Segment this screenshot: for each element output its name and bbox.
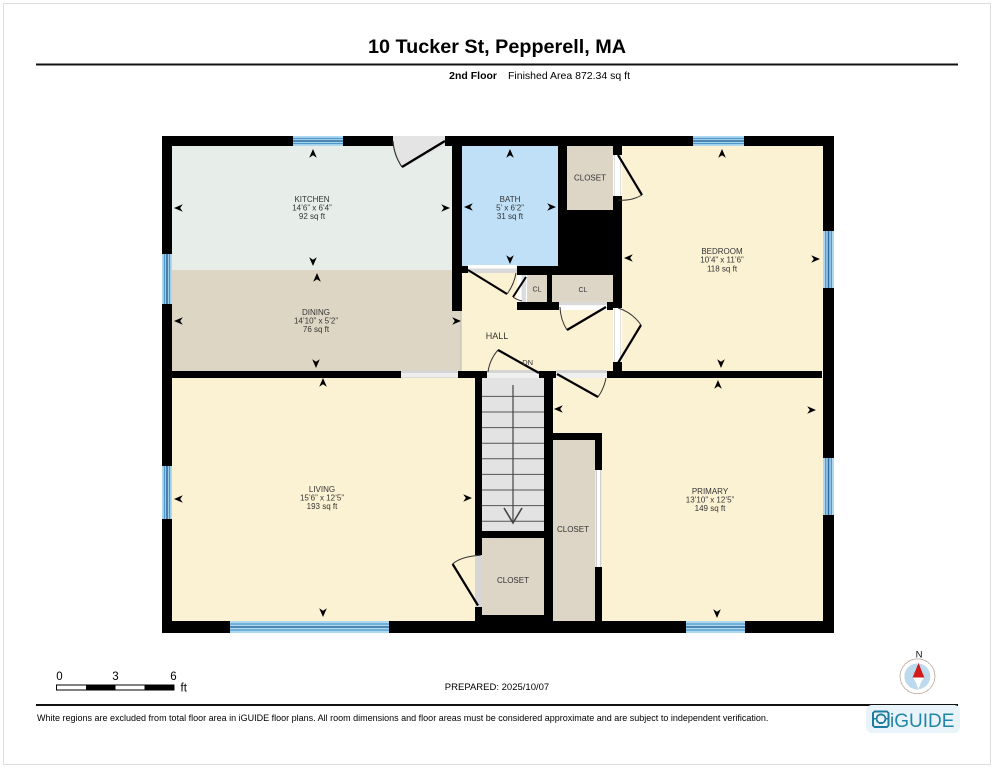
- svg-text:10 Tucker St, Pepperell, MA: 10 Tucker St, Pepperell, MA: [368, 36, 626, 58]
- svg-text:76 sq ft: 76 sq ft: [303, 325, 330, 334]
- svg-text:White regions are excluded fro: White regions are excluded from total fl…: [37, 713, 768, 723]
- svg-text:10’4” x 11’6”: 10’4” x 11’6”: [700, 256, 744, 265]
- svg-text:92 sq ft: 92 sq ft: [299, 212, 326, 221]
- svg-text:2nd Floor: 2nd Floor: [449, 70, 497, 82]
- svg-text:118 sq ft: 118 sq ft: [707, 265, 738, 274]
- svg-text:Finished Area 872.34 sq ft: Finished Area 872.34 sq ft: [508, 70, 630, 82]
- svg-text:CLOSET: CLOSET: [574, 174, 606, 183]
- svg-text:CLOSET: CLOSET: [497, 576, 529, 585]
- svg-text:DN: DN: [522, 358, 533, 367]
- svg-text:193 sq ft: 193 sq ft: [307, 502, 338, 511]
- svg-text:149 sq ft: 149 sq ft: [695, 504, 726, 513]
- svg-text:0: 0: [56, 671, 62, 683]
- svg-text:PREPARED: 2025/10/07: PREPARED: 2025/10/07: [445, 682, 549, 693]
- svg-text:CL: CL: [533, 287, 542, 294]
- svg-text:CL: CL: [579, 287, 588, 294]
- svg-text:iGUIDE: iGUIDE: [890, 711, 954, 732]
- svg-text:3: 3: [112, 671, 118, 683]
- svg-text:CLOSET: CLOSET: [557, 525, 589, 534]
- svg-text:6: 6: [170, 671, 176, 683]
- svg-text:31 sq ft: 31 sq ft: [497, 212, 524, 221]
- svg-text:ft: ft: [181, 683, 188, 695]
- svg-text:HALL: HALL: [486, 331, 509, 341]
